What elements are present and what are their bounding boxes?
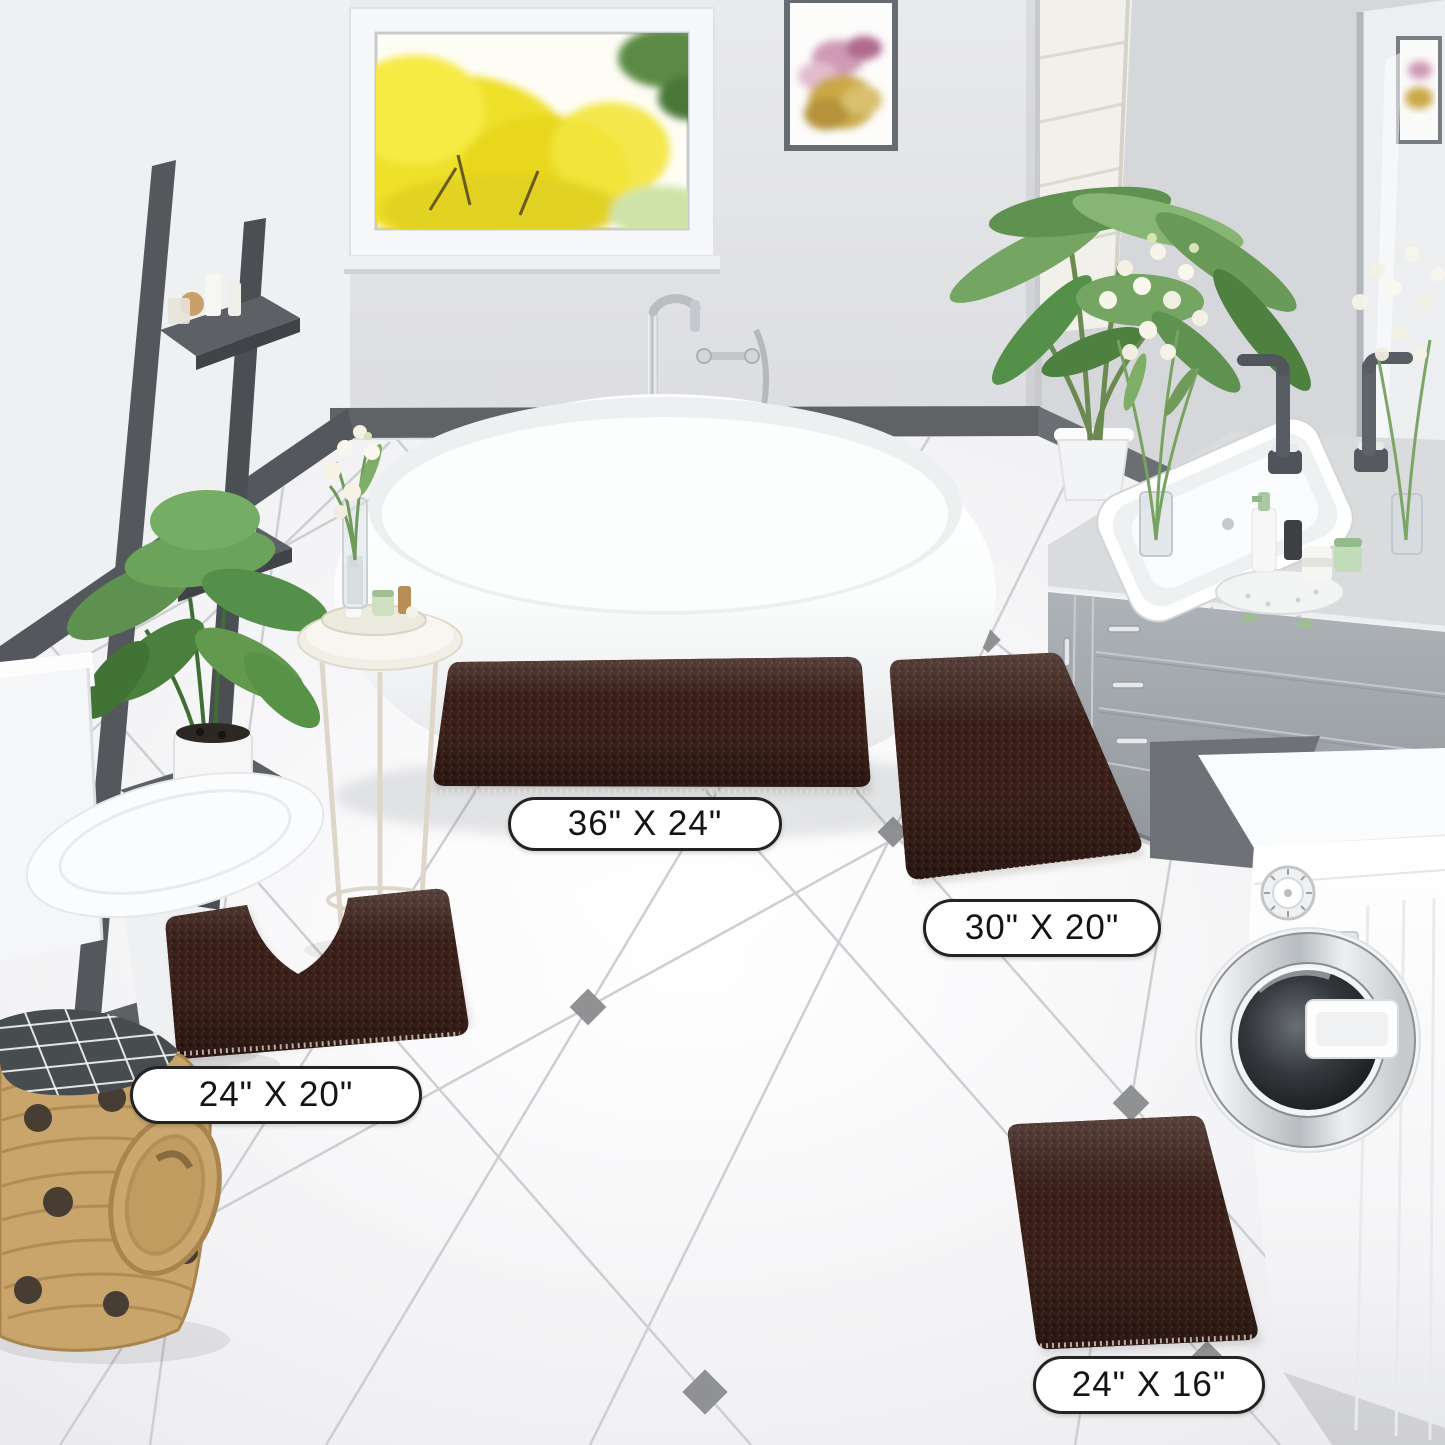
rug-36x24 xyxy=(432,657,872,794)
wall-art-frame xyxy=(787,0,895,148)
size-label-24x20: 24" X 20" xyxy=(130,1066,422,1124)
sink-drain xyxy=(1222,518,1234,530)
bathroom-product-photo: 36" X 24" 30" X 20" 24" X 20" 24" X 16" xyxy=(0,0,1445,1445)
washer-dial xyxy=(1262,867,1314,919)
size-label-30x20: 30" X 20" xyxy=(923,899,1161,957)
scene-canvas xyxy=(0,0,1445,1445)
window-sill xyxy=(344,256,720,270)
window xyxy=(335,8,722,274)
size-label-36x24: 36" X 24" xyxy=(508,797,782,851)
size-label-24x16: 24" X 16" xyxy=(1033,1356,1265,1414)
